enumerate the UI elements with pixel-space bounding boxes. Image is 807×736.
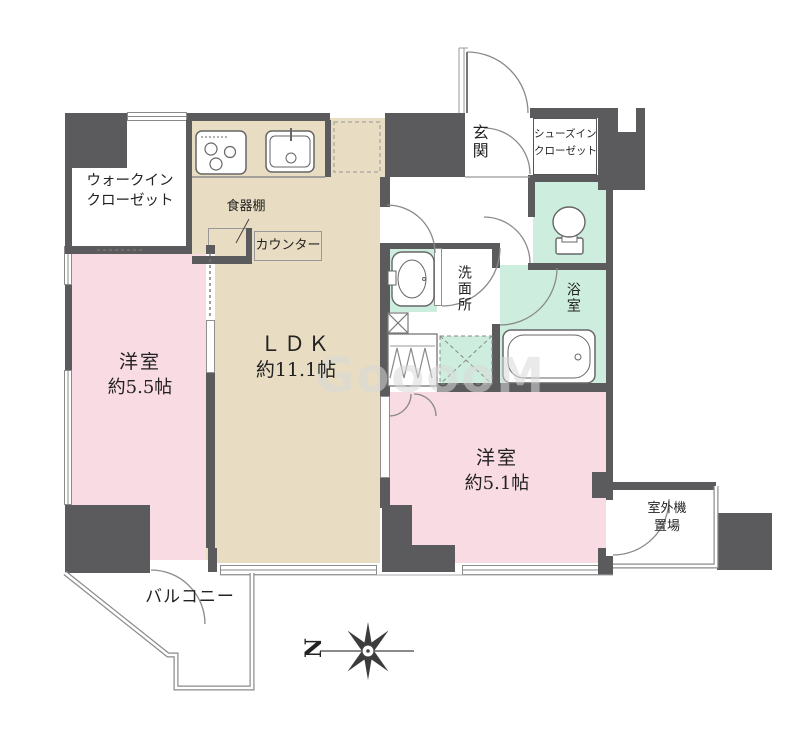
label-outdoor-unit: 室外機 置場 — [634, 500, 700, 535]
wall-segment — [186, 120, 192, 246]
wall-segment — [208, 548, 217, 572]
label-dish-shelf: 食器棚 — [218, 198, 274, 216]
wall-segment — [65, 168, 72, 246]
window — [127, 112, 187, 121]
fridge-nook-floor — [330, 118, 385, 177]
wall-segment — [528, 263, 613, 270]
label-bathroom: 浴室 — [563, 282, 582, 314]
vanity-counter-area — [390, 246, 437, 312]
wall-segment — [65, 246, 192, 254]
wall-segment — [717, 513, 772, 570]
label-walk-in-closet: ウォークイン クローゼット — [74, 172, 186, 211]
wall-segment — [65, 505, 150, 573]
wall-segment — [385, 113, 465, 177]
window — [462, 565, 602, 575]
floor-plan: N GooooM ウォークイン クローゼット 食器棚 カウンター ＬＤＫ 約11… — [0, 0, 807, 736]
wall-segment — [528, 177, 535, 217]
wall-segment — [380, 478, 390, 508]
wall-segment — [65, 113, 127, 168]
wall-segment — [325, 120, 331, 177]
wall-segment — [65, 285, 72, 370]
wall-segment — [187, 113, 330, 121]
label-shoes-closet: シューズイン クローゼット — [534, 126, 596, 160]
window — [220, 565, 377, 575]
entry-door-icon — [459, 48, 528, 113]
label-balcony: バルコニー — [125, 586, 255, 609]
compass-icon: N — [301, 622, 414, 680]
label-ldk: ＬＤＫ 約11.1帖 — [226, 330, 366, 384]
wall-segment — [192, 256, 252, 264]
wall-segment — [492, 248, 500, 268]
door-gap — [150, 560, 208, 575]
wall-segment — [206, 373, 215, 548]
label-bedroom-51: 洋室 約5.1帖 — [437, 446, 557, 496]
pipe-shaft-icon — [388, 313, 408, 333]
window — [64, 370, 72, 505]
sliding-door — [206, 320, 215, 373]
label-genkan: 玄関 — [468, 124, 490, 160]
label-washroom: 洗面所 — [454, 265, 473, 313]
wall-segment — [592, 472, 613, 498]
wall-segment — [380, 177, 390, 207]
door-gap — [606, 500, 613, 556]
wall-segment — [206, 245, 215, 254]
room-toilet-floor — [533, 182, 606, 263]
label-counter: カウンター — [254, 237, 322, 255]
wall-segment — [606, 180, 613, 472]
wall-notch — [618, 108, 636, 132]
sliding-door — [380, 396, 390, 478]
label-bedroom-55: 洋室 約5.5帖 — [80, 350, 200, 400]
wall-segment — [613, 482, 716, 490]
wall-segment — [382, 545, 455, 572]
wall-segment — [530, 108, 600, 118]
compass-north-label: N — [301, 638, 327, 658]
door-leaf — [434, 248, 442, 306]
